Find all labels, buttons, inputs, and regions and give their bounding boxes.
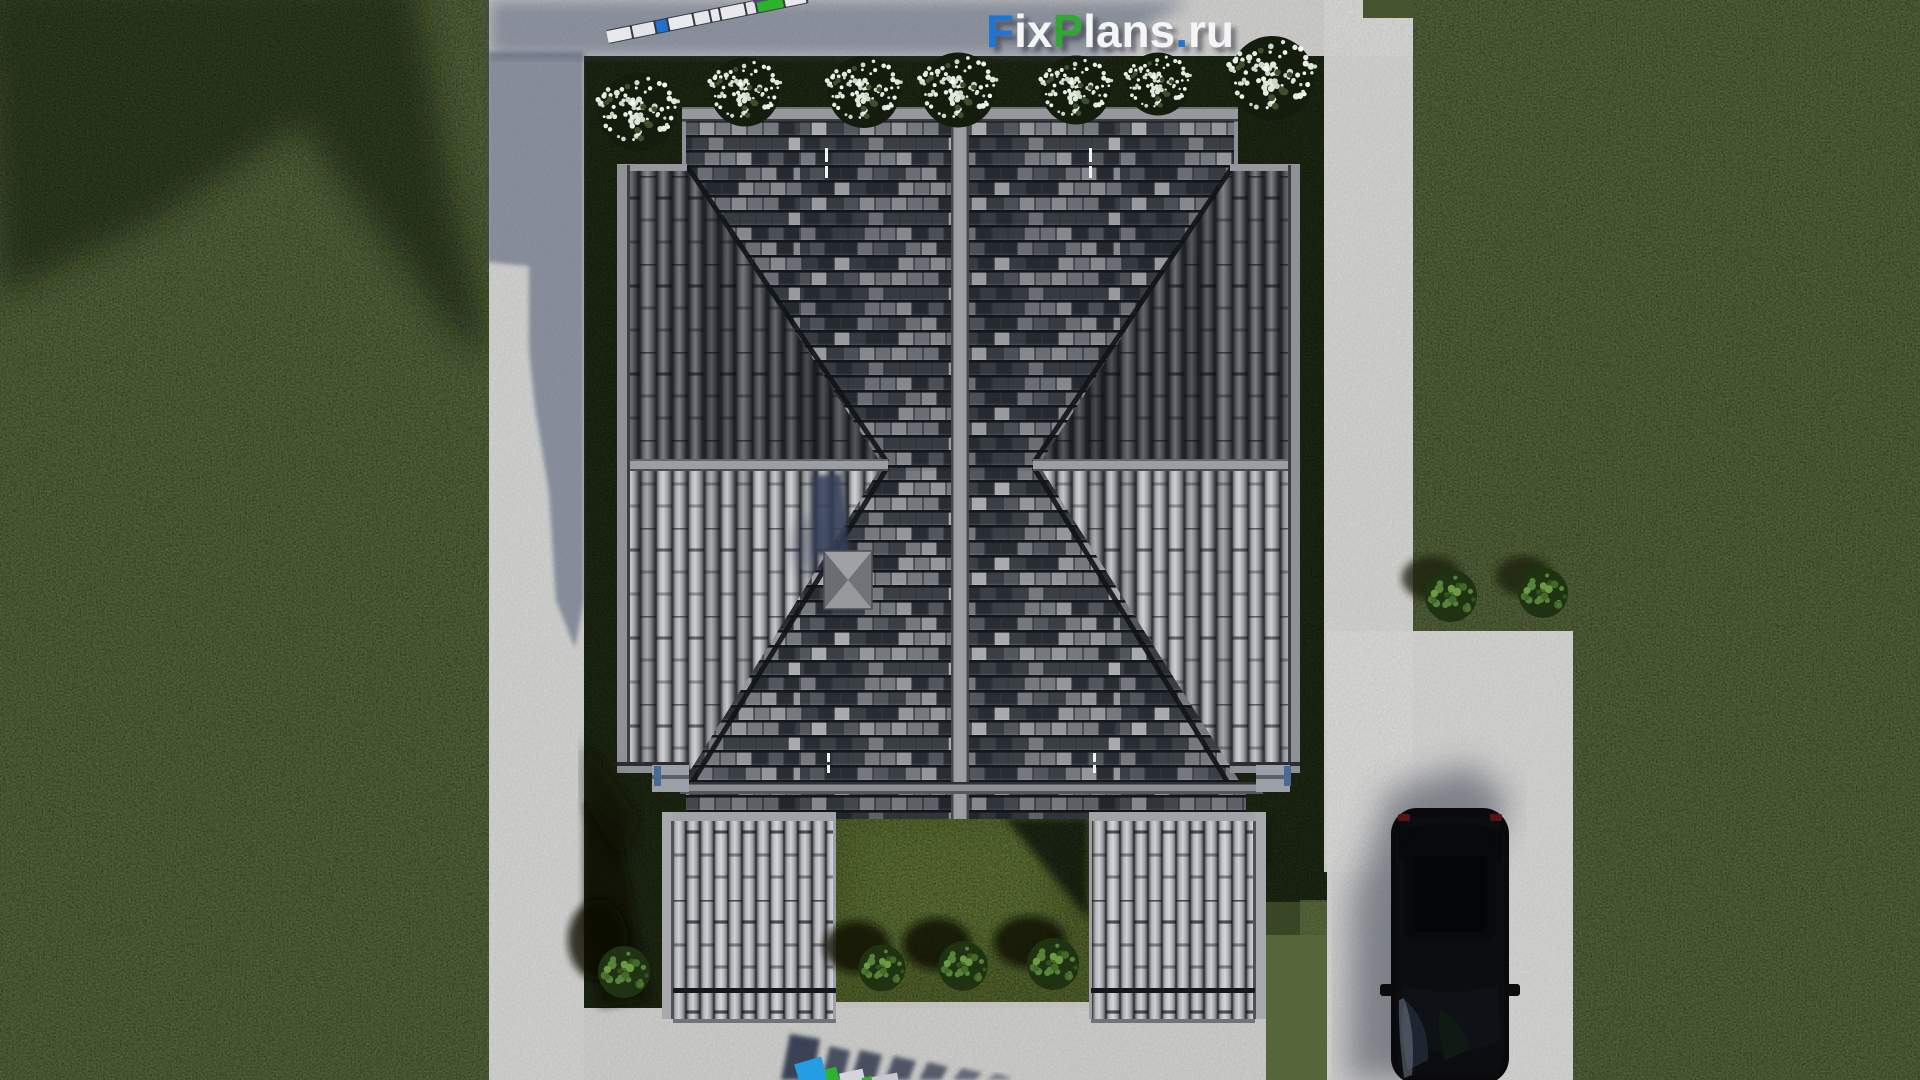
svg-text:FixPlans.ru: FixPlans.ru [986, 5, 1234, 57]
